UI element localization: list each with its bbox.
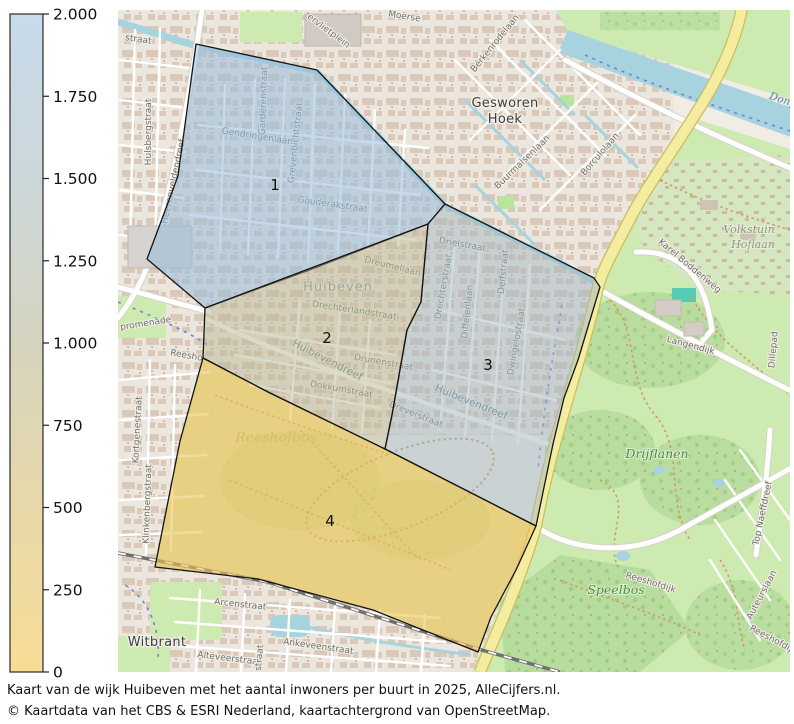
map-label: Hulsbergstraat — [144, 98, 154, 165]
map-label: Drijflanen — [624, 446, 688, 461]
legend-colorbar — [10, 14, 43, 672]
legend-tick-label: 1.000 — [53, 335, 97, 353]
caption-line1: Kaart van de wijk Huibeven met het aanta… — [7, 683, 561, 698]
map-label: Speelbos — [587, 582, 644, 597]
legend-tick-label: 2.000 — [53, 6, 97, 24]
legend-tick-label: 1.500 — [53, 170, 97, 188]
legend-ticks: 2.0001.7501.5001.2501.0007505002500 — [43, 6, 97, 682]
map-label: Volkstuin — [723, 223, 775, 236]
region-number-1: 1 — [270, 176, 280, 194]
map-label: Hoek — [488, 112, 523, 127]
legend-tick-label: 250 — [53, 581, 83, 599]
legend: 2.0001.7501.5001.2501.0007505002500 — [10, 6, 97, 682]
map-label: Hoflaan — [730, 238, 775, 251]
region-number-2: 2 — [322, 329, 332, 347]
map-canvas: ervlietpleinMoerseBerkenrodelaanBuurmals… — [118, 8, 794, 672]
legend-tick-label: 500 — [53, 499, 83, 517]
caption-line2: © Kaartdata van het CBS & ESRI Nederland… — [7, 704, 550, 719]
map-label: Gesworen — [471, 96, 538, 111]
legend-tick-label: 750 — [53, 417, 83, 435]
region-number-4: 4 — [325, 512, 335, 530]
map-label: Witbrant — [128, 635, 187, 650]
legend-tick-label: 1.250 — [53, 252, 97, 270]
region-number-3: 3 — [483, 356, 493, 374]
map-figure: 2.0001.7501.5001.2501.0007505002500 — [0, 0, 794, 724]
map-svg: 2.0001.7501.5001.2501.0007505002500 — [0, 0, 794, 724]
legend-tick-label: 0 — [53, 664, 63, 682]
legend-tick-label: 1.750 — [53, 88, 97, 106]
